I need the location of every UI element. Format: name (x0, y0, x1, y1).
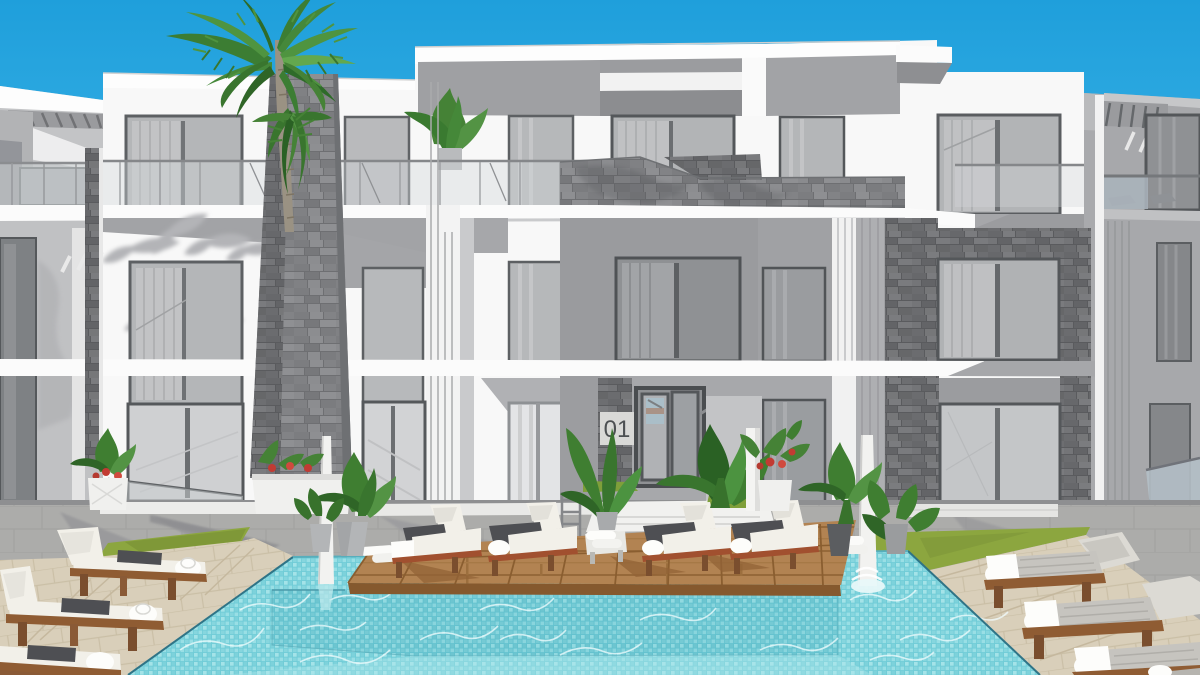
svg-text:01: 01 (604, 416, 631, 443)
